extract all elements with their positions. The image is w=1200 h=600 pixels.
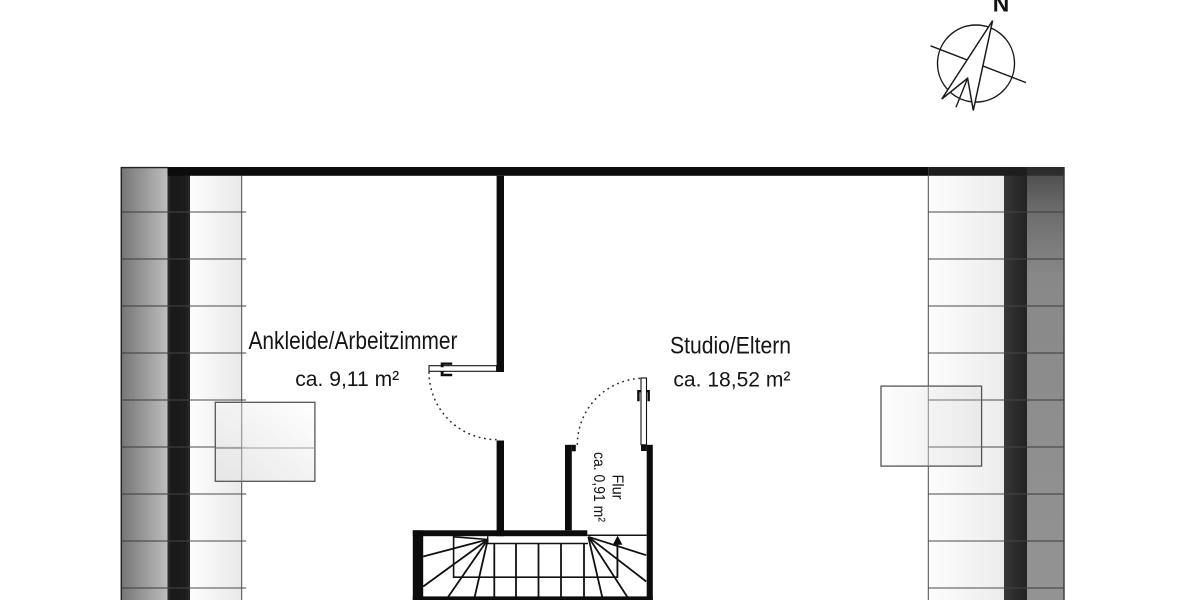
svg-text:Flur: Flur — [609, 475, 626, 501]
svg-text:Ankleide/Arbeitzimmer: Ankleide/Arbeitzimmer — [249, 327, 458, 355]
svg-text:N: N — [993, 0, 1010, 17]
svg-text:Studio/Eltern: Studio/Eltern — [670, 333, 791, 360]
svg-text:ca. 0,91 m²: ca. 0,91 m² — [590, 452, 607, 523]
svg-text:ca. 9,11 m²: ca. 9,11 m² — [295, 367, 399, 391]
svg-text:ca. 18,52 m²: ca. 18,52 m² — [673, 367, 790, 391]
